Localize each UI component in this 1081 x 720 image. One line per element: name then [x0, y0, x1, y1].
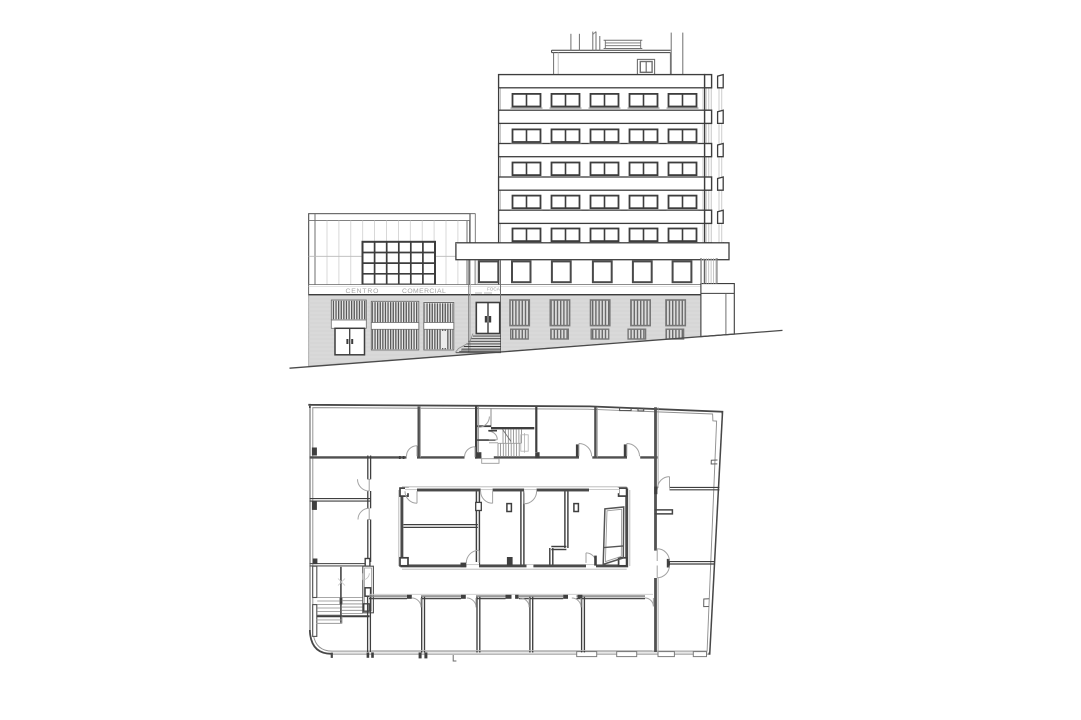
svg-text:CENTRO: CENTRO	[346, 288, 380, 295]
svg-text:COMERCIAL: COMERCIAL	[402, 288, 446, 295]
svg-text:FOCA: FOCA	[487, 287, 501, 292]
